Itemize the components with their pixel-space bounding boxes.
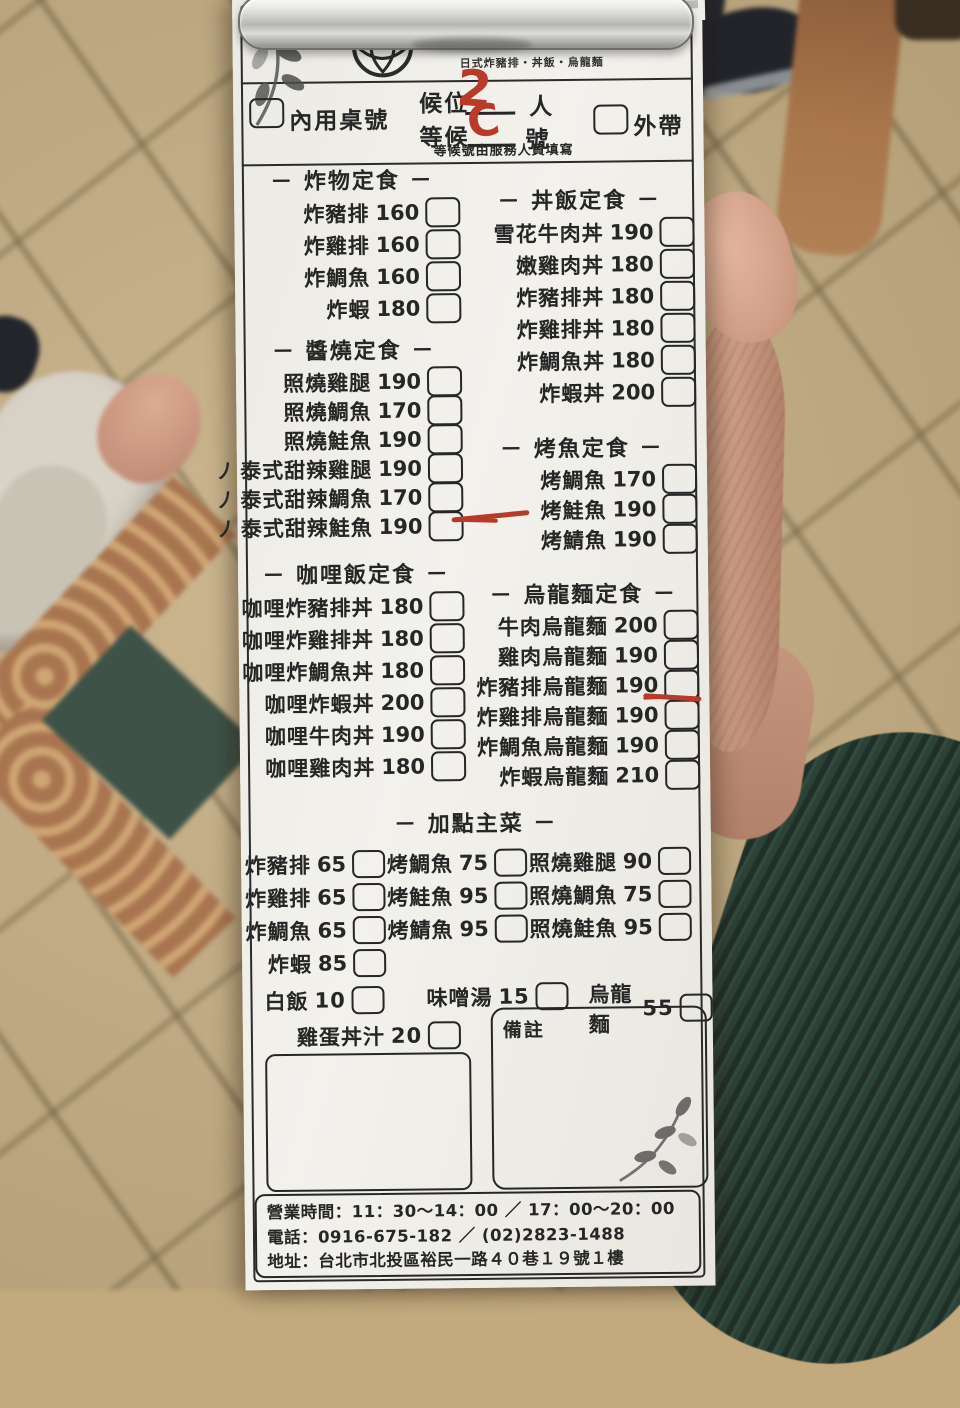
party-unit: 人 [529, 87, 554, 121]
section-teriyaki: － 醬燒定食 － ノ 照燒雞腿 190 ノ 照燒鯛魚 170 ノ [244, 336, 466, 542]
item-checkbox [664, 700, 699, 730]
menu-item-row: ノ 烤鯛魚 170 [465, 464, 699, 496]
item-price: 180 [380, 626, 424, 650]
item-price: 65 [317, 885, 346, 909]
item-price: 65 [317, 852, 346, 876]
item-checkbox [352, 882, 385, 910]
extra-item-row: 照燒雞腿 90 [533, 844, 697, 879]
item-price: 180 [611, 316, 655, 340]
item-checkbox [428, 511, 463, 541]
extra-item-row: 炸蝦 85 [254, 946, 392, 980]
item-price: 190 [612, 497, 656, 521]
item-name: 咖哩牛肉丼 [265, 720, 375, 751]
item-price: 65 [317, 918, 346, 942]
item-price: 190 [378, 427, 422, 451]
section-title: － 烤魚定食 － [465, 434, 699, 466]
item-price: 190 [379, 514, 423, 538]
item-price: 190 [610, 220, 654, 244]
item-price: 180 [611, 348, 655, 372]
item-price: 180 [610, 252, 654, 276]
takeout-checkbox [593, 104, 628, 134]
item-checkbox [661, 345, 696, 375]
item-price: 190 [614, 643, 658, 667]
item-name: 炸雞排丼 [517, 314, 605, 345]
item-checkbox [428, 482, 463, 512]
item-price: 170 [612, 467, 656, 491]
item-checkbox [425, 229, 460, 259]
wait-number-note: 等候號由服務人員填寫 [364, 138, 644, 160]
item-name: 烤鮭魚 [540, 495, 606, 526]
extra-item-row: 炸鯛魚 65 [254, 913, 392, 947]
item-checkbox [663, 524, 698, 554]
section-title: － 咖哩飯定食 － [246, 560, 466, 592]
item-checkbox [665, 730, 700, 760]
item-checkbox [660, 313, 695, 343]
item-name: 照燒雞腿 [283, 367, 371, 398]
item-name: 炸蝦 [268, 948, 312, 978]
menu-item-row: ノ 雞肉烏龍麵 190 [467, 640, 701, 672]
item-name: 咖哩炸豬排丼 [241, 592, 373, 623]
menu-item-row: ノ 炸鯛魚 160 [243, 260, 463, 294]
menu-item-row: ノ 炸雞排烏龍麵 190 [467, 700, 701, 732]
item-price: 170 [377, 398, 421, 422]
item-checkbox [662, 494, 697, 524]
notes-label: 備註 [503, 1015, 545, 1042]
item-name: 照燒雞腿 [529, 846, 617, 877]
notes-box: 備註 [491, 1006, 709, 1190]
item-name: 雪花牛肉丼 [494, 218, 604, 249]
item-checkbox [353, 915, 386, 943]
section-donburi: － 丼飯定食 － ノ 雪花牛肉丼 190 ノ 嫩雞肉丼 180 ノ [462, 186, 698, 410]
item-price: 190 [377, 369, 421, 393]
item-price: 95 [459, 883, 488, 907]
item-name: 雞肉烏龍麵 [498, 641, 608, 672]
menu-item-row: ノ 咖哩炸豬排丼 180 [246, 590, 466, 624]
item-price: 210 [615, 763, 659, 787]
menu-item-row: ノ 炸蝦烏龍麵 210 [468, 760, 702, 792]
item-price: 200 [611, 380, 655, 404]
menu-item-row: ノ 咖哩炸雞排丼 180 [247, 622, 467, 656]
menu-item-row: ノ 炸雞排 160 [242, 228, 462, 262]
section-title: － 烏龍麵定食 － [466, 580, 700, 612]
section-title: － 醬燒定食 － [244, 336, 464, 368]
menu-item-row: ノ 炸蝦丼 200 [464, 376, 698, 410]
menu-order-form: 和幸廣定食 日式炸豬排・丼飯・烏龍麵 內用桌號 候位 人 2 等候 號 C 外帶… [232, 0, 716, 1290]
item-name: 照燒鯛魚 [283, 396, 371, 427]
item-checkbox [428, 453, 463, 483]
item-price: 160 [375, 201, 419, 225]
extra-item-row: 烤鯛魚 75 [391, 845, 533, 879]
item-checkbox [352, 849, 385, 877]
section-grilled-fish: － 烤魚定食 － ノ 烤鯛魚 170 ノ 烤鮭魚 190 ノ 烤鯖 [465, 434, 700, 556]
menu-item-row: ノ 雪花牛肉丼 190 [462, 216, 696, 250]
item-name: 烤鯖魚 [541, 525, 607, 556]
item-price: 180 [376, 297, 420, 321]
item-name: 照燒鮭魚 [529, 912, 617, 943]
side-item-rice: 白飯 10 [264, 985, 385, 1016]
item-price: 75 [623, 882, 652, 906]
item-name: 味噌湯 [426, 982, 492, 1013]
item-name: 照燒鯛魚 [529, 879, 617, 910]
menu-item-row: ノ 泰式甜辣鮭魚 190 [245, 511, 465, 542]
menu-item-row: ノ 照燒鯛魚 170 [244, 395, 464, 426]
item-name: 炸蝦烏龍麵 [499, 761, 609, 792]
item-name: 烤鯛魚 [387, 848, 453, 879]
item-name: 泰式甜辣鮭魚 [241, 512, 373, 543]
item-name: 炸雞排烏龍麵 [477, 701, 609, 732]
item-name: 咖哩炸鯛魚丼 [242, 656, 374, 687]
item-name: 泰式甜辣鯛魚 [240, 483, 372, 514]
menu-item-row: ノ 炸雞排丼 180 [463, 312, 697, 346]
item-price: 180 [381, 754, 425, 778]
order-writing-box [265, 1052, 472, 1192]
item-checkbox [425, 197, 460, 227]
item-name: 炸鯛魚丼 [517, 346, 605, 377]
extra-item-row: 烤鯖魚 95 [392, 911, 534, 945]
item-price: 160 [376, 233, 420, 257]
menu-item-row: ノ 咖哩炸蝦丼 200 [247, 686, 467, 720]
menu-item-row: ノ 照燒雞腿 190 [244, 366, 464, 397]
section-fried: － 炸物定食 － ノ 炸豬排 160 ノ 炸雞排 160 ノ 炸鯛 [242, 166, 464, 326]
item-price: 15 [498, 984, 529, 1008]
clipboard-clip [238, 0, 694, 50]
menu-column-left: － 炸物定食 － ノ 炸豬排 160 ノ 炸雞排 160 ノ 炸鯛 [242, 166, 468, 784]
item-name: 烤鯖魚 [387, 914, 453, 945]
item-checkbox [428, 1021, 461, 1049]
menu-item-row: ノ 烤鮭魚 190 [465, 494, 699, 526]
menu-item-row: ノ 炸豬排 160 [242, 196, 462, 230]
item-price: 85 [318, 951, 347, 975]
item-name: 牛肉烏龍麵 [498, 611, 608, 642]
item-name: 烤鯛魚 [540, 465, 606, 496]
menu-item-row: ノ 炸豬排丼 180 [463, 280, 697, 314]
extra-item-row: 照燒鯛魚 75 [533, 877, 697, 912]
menu-item-row: ノ 炸鯛魚烏龍麵 190 [468, 730, 702, 762]
section-title: － 炸物定食 － [242, 166, 462, 198]
item-checkbox [352, 986, 385, 1014]
item-name: 照燒鮭魚 [284, 425, 372, 456]
item-checkbox [663, 610, 698, 640]
item-checkbox [659, 217, 694, 247]
extra-item-row: 炸豬排 65 [253, 847, 391, 881]
item-checkbox [430, 687, 465, 717]
item-price: 180 [610, 284, 654, 308]
item-name: 嫩雞肉丼 [516, 250, 604, 281]
item-price: 200 [380, 690, 424, 714]
item-price: 95 [623, 915, 652, 939]
item-name: 烤鮭魚 [387, 881, 453, 912]
menu-item-row: ノ 泰式甜辣鯛魚 170 [245, 482, 465, 513]
item-checkbox [660, 249, 695, 279]
item-name: 炸鯛魚烏龍麵 [477, 731, 609, 762]
item-checkbox [658, 846, 691, 874]
item-price: 90 [623, 849, 652, 873]
item-checkbox [427, 395, 462, 425]
item-name: 咖哩炸蝦丼 [264, 688, 374, 719]
item-name: 咖哩雞肉丼 [265, 752, 375, 783]
item-checkbox [430, 655, 465, 685]
item-price: 190 [613, 527, 657, 551]
item-price: 170 [378, 485, 422, 509]
item-price: 75 [459, 850, 488, 874]
item-name: 炸豬排丼 [516, 282, 604, 313]
item-checkbox [494, 881, 527, 909]
item-checkbox [428, 424, 463, 454]
menu-item-row: ノ 炸蝦 180 [243, 292, 463, 326]
item-checkbox [431, 751, 466, 781]
item-checkbox [662, 464, 697, 494]
item-name: 炸鯛魚 [245, 915, 311, 946]
item-name: 雞蛋丼汁 [297, 1021, 385, 1052]
extra-item-row: 炸雞排 65 [253, 880, 391, 914]
item-name: 咖哩炸雞排丼 [242, 624, 374, 655]
item-name: 泰式甜辣雞腿 [240, 454, 372, 485]
item-price: 160 [376, 265, 420, 289]
section-extras: 炸豬排 65 烤鯛魚 75 照燒雞腿 90 炸雞排 65 烤鮭魚 95 照燒鯛魚 [253, 844, 698, 981]
item-price: 200 [614, 613, 658, 637]
item-name: 炸雞排 [304, 230, 370, 261]
dine-in-checkbox [249, 98, 284, 128]
item-price: 190 [615, 733, 659, 757]
item-price: 180 [380, 658, 424, 682]
extra-item-row: 照燒鮭魚 95 [534, 910, 698, 945]
item-price: 190 [615, 703, 659, 727]
section-title: － 丼飯定食 － [462, 186, 696, 218]
item-checkbox [429, 591, 464, 621]
item-checkbox [431, 719, 466, 749]
menu-item-row: ノ 泰式甜辣雞腿 190 [245, 453, 465, 484]
leaf-branch-decoration-icon [612, 1092, 705, 1185]
takeout-label: 外帶 [633, 107, 683, 142]
section-udon: － 烏龍麵定食 － ノ 牛肉烏龍麵 200 ノ 雞肉烏龍麵 190 ノ [466, 580, 702, 792]
item-name: 白飯 [264, 986, 308, 1016]
extra-item-row: 烤鮭魚 95 [391, 878, 533, 912]
item-price: 180 [379, 594, 423, 618]
item-price: 190 [378, 456, 422, 480]
item-price: 20 [391, 1024, 422, 1048]
menu-item-row: ノ 牛肉烏龍麵 200 [466, 610, 700, 642]
side-item-egg-sauce: 雞蛋丼汁 20 [297, 1020, 462, 1052]
menu-item-row: ノ 嫩雞肉丼 180 [463, 248, 697, 282]
item-name: 炸蝦 [326, 294, 370, 324]
item-name: 炸雞排 [245, 882, 311, 913]
item-checkbox [426, 261, 461, 291]
store-info-box: 營業時間：11：30～14：00 ／ 17：00～20：00 電話：0916-6… [255, 1190, 702, 1279]
item-name: 炸蝦丼 [539, 378, 605, 409]
item-checkbox [430, 623, 465, 653]
section-curry: － 咖哩飯定食 － ノ 咖哩炸豬排丼 180 ノ 咖哩炸雞排丼 180 ノ [246, 560, 468, 784]
menu-item-row: ノ 咖哩雞肉丼 180 [248, 750, 468, 784]
item-checkbox [660, 281, 695, 311]
item-checkbox [494, 848, 527, 876]
item-checkbox [495, 914, 528, 942]
menu-item-row: ノ 烤鯖魚 190 [466, 524, 700, 556]
item-price: 95 [459, 916, 488, 940]
item-checkbox [664, 640, 699, 670]
item-price: 190 [381, 722, 425, 746]
address: 地址：台北市北投區裕民一路４０巷１９號１樓 [267, 1246, 689, 1275]
section-extras-title: － 加點主菜 － [241, 807, 711, 842]
item-checkbox [659, 912, 692, 940]
item-checkbox [353, 948, 386, 976]
item-name: 炸鯛魚 [304, 262, 370, 293]
item-name: 炸豬排 [245, 849, 311, 880]
menu-item-row: ノ 炸鯛魚丼 180 [464, 344, 698, 378]
item-checkbox [427, 366, 462, 396]
menu-item-row: ノ 咖哩炸鯛魚丼 180 [247, 654, 467, 688]
item-checkbox [426, 293, 461, 323]
menu-item-row: ノ 照燒鮭魚 190 [245, 424, 465, 455]
dine-in-label: 內用桌號 [289, 101, 389, 136]
menu-item-row: ノ 咖哩牛肉丼 190 [248, 718, 468, 752]
item-checkbox [661, 377, 696, 407]
item-price: 10 [314, 988, 345, 1012]
item-checkbox [665, 760, 700, 790]
restaurant-tagline: 日式炸豬排・丼飯・烏龍麵 [423, 53, 641, 71]
item-name: 炸豬排烏龍麵 [476, 671, 608, 702]
item-checkbox [658, 879, 691, 907]
item-name: 炸豬排 [303, 198, 369, 229]
business-hours: 營業時間：11：30～14：00 ／ 17：00～20：00 [267, 1197, 689, 1226]
